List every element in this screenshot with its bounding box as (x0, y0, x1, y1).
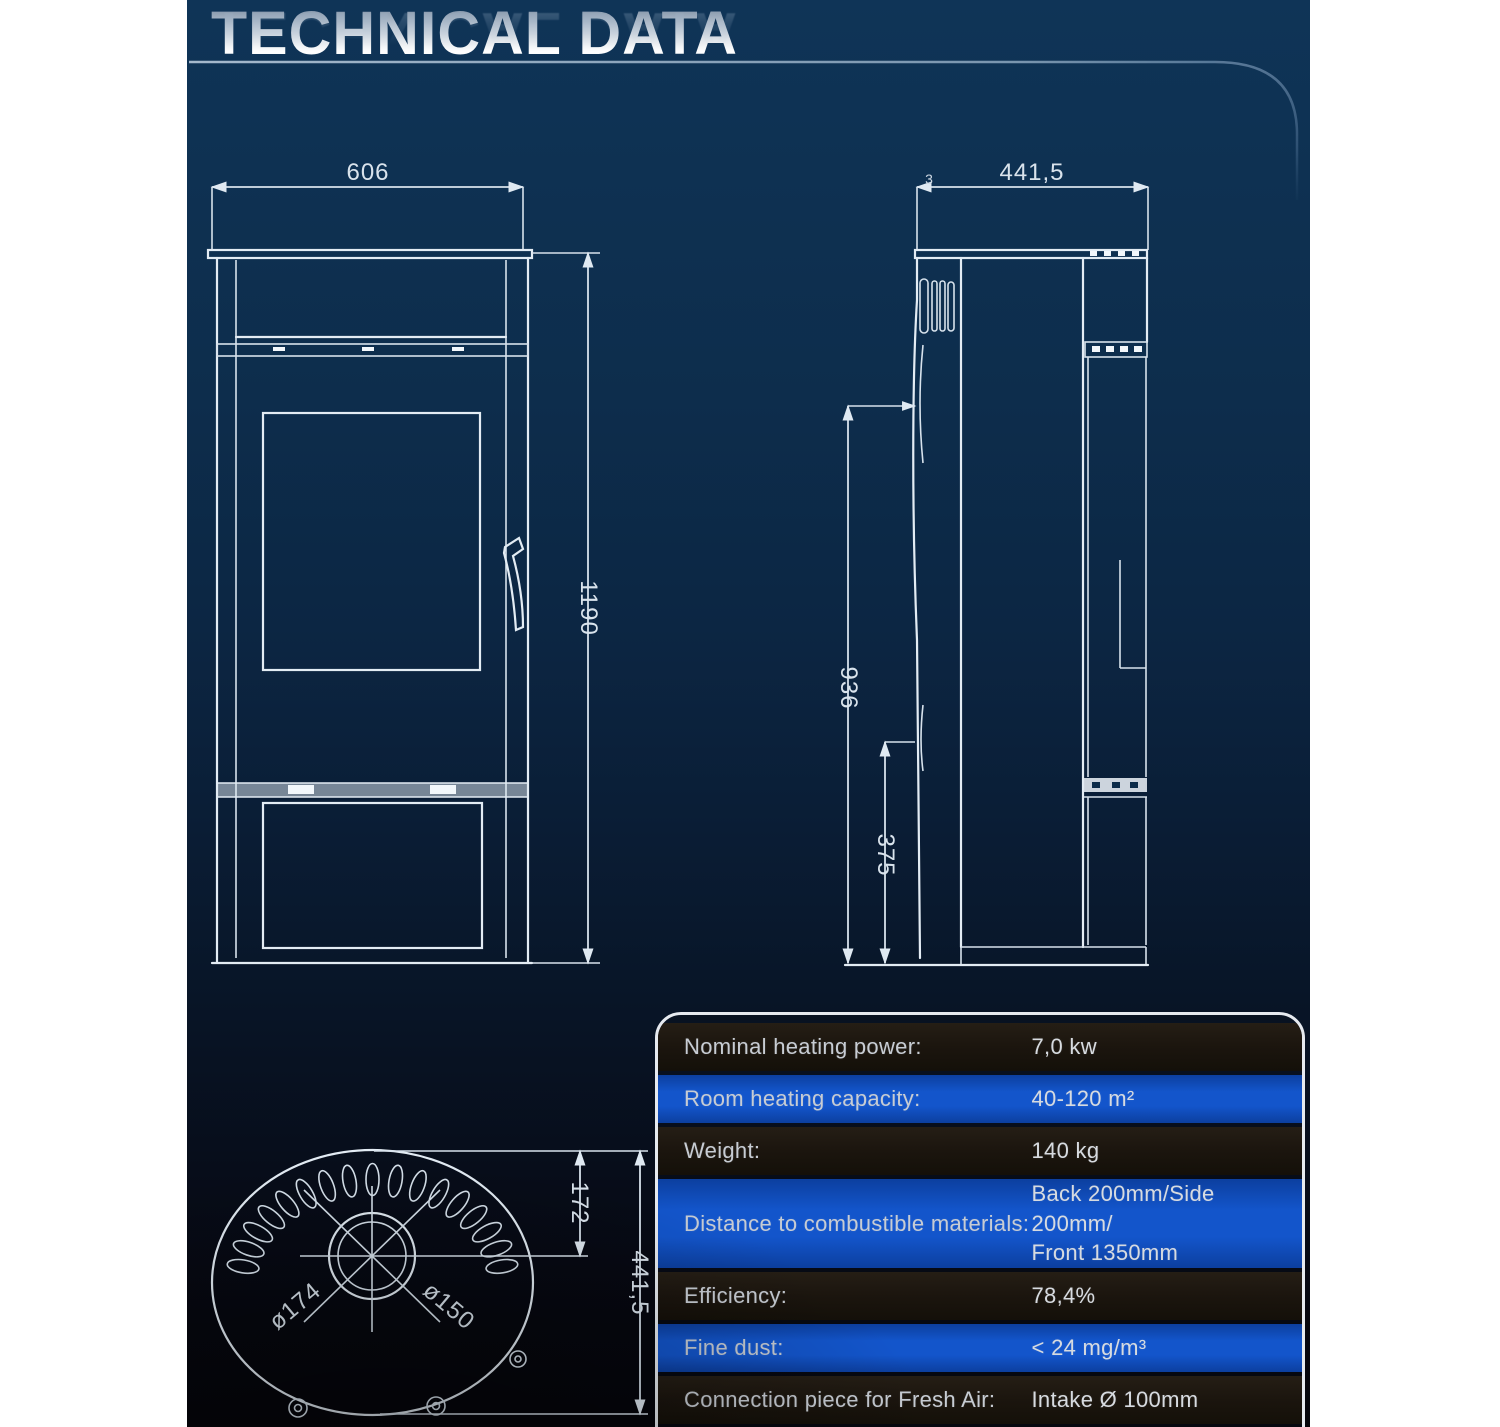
spec-row-nominal-heating-power: Nominal heating power: 7,0 kw (658, 1023, 1302, 1071)
spec-value: 7,0 kw (1032, 1032, 1302, 1062)
side-depth-label: 441,5 (999, 159, 1064, 186)
top-center-offset-label: 172 (566, 1181, 593, 1224)
top-flue-inner-label: ø150 (418, 1277, 480, 1335)
brochure-panel: TECHNICAL DATA TECHNICAL DATA 606 (187, 0, 1310, 1427)
side-base-height-dimension: 375 (872, 742, 915, 963)
spec-value: 78,4% (1032, 1281, 1302, 1311)
side-depth-dimension: 441,5 3 (917, 159, 1148, 250)
front-width-label: 606 (346, 159, 389, 186)
side-lip-label: 3 (925, 171, 933, 187)
top-feet (289, 1351, 526, 1417)
spec-value-line-2: Front 1350mm (1032, 1238, 1302, 1268)
front-height-dimension: 1190 (532, 253, 602, 963)
spec-label: Distance to combustible materials: (658, 1211, 1032, 1237)
spec-label: Weight: (658, 1138, 1032, 1164)
spec-value: Back 200mm/Side 200mm/ Front 1350mm (1032, 1179, 1302, 1268)
spec-value-line-1: Back 200mm/Side 200mm/ (1032, 1179, 1302, 1238)
spec-value: Intake Ø 100mm (1032, 1385, 1302, 1415)
front-height-label: 1190 (575, 580, 602, 636)
spec-label: Fine dust: (658, 1335, 1032, 1361)
spec-value: < 24 mg/m³ (1032, 1333, 1302, 1363)
spec-row-distance-to-combustible-materials: Distance to combustible materials: Back … (658, 1179, 1302, 1268)
spec-value: 140 kg (1032, 1136, 1302, 1166)
spec-label: Nominal heating power: (658, 1034, 1032, 1060)
spec-row-fine-dust: Fine dust: < 24 mg/m³ (658, 1324, 1302, 1372)
top-view-drawing: ø174 ø150 172 441,5 (190, 1120, 660, 1427)
spec-row-weight: Weight: 140 kg (658, 1127, 1302, 1175)
front-door-glass (263, 413, 480, 670)
side-upper-height-label: 936 (835, 666, 862, 709)
side-vent-slots (920, 279, 954, 333)
spec-label: Connection piece for Fresh Air: (658, 1387, 1032, 1413)
spec-row-fresh-air-connection: Connection piece for Fresh Air: Intake Ø… (658, 1376, 1302, 1424)
spec-value: 40-120 m² (1032, 1084, 1302, 1114)
side-base-height-label: 375 (872, 833, 899, 876)
side-view-drawing: 441,5 3 (825, 150, 1165, 1010)
spec-table: Nominal heating power: 7,0 kw Room heati… (655, 1012, 1305, 1427)
front-width-dimension: 606 (212, 159, 523, 250)
spec-label: Efficiency: (658, 1283, 1032, 1309)
page: TECHNICAL DATA TECHNICAL DATA 606 (0, 0, 1500, 1427)
side-upper-height-dimension: 936 (835, 406, 915, 963)
top-depth-dimension: 441,5 (380, 1151, 653, 1414)
front-stove-body (208, 250, 532, 963)
top-flue-outer-label: ø174 (264, 1277, 326, 1335)
spec-label: Room heating capacity: (658, 1086, 1032, 1112)
front-view-drawing: 606 (190, 150, 620, 1010)
top-center-offset-dimension: 172 (374, 1151, 648, 1256)
top-depth-label: 441,5 (626, 1250, 653, 1315)
spec-row-efficiency: Efficiency: 78,4% (658, 1272, 1302, 1320)
spec-row-room-heating-capacity: Room heating capacity: 40-120 m² (658, 1075, 1302, 1123)
title-reflection: TECHNICAL DATA (211, 1, 738, 65)
front-door-handle (504, 538, 523, 630)
